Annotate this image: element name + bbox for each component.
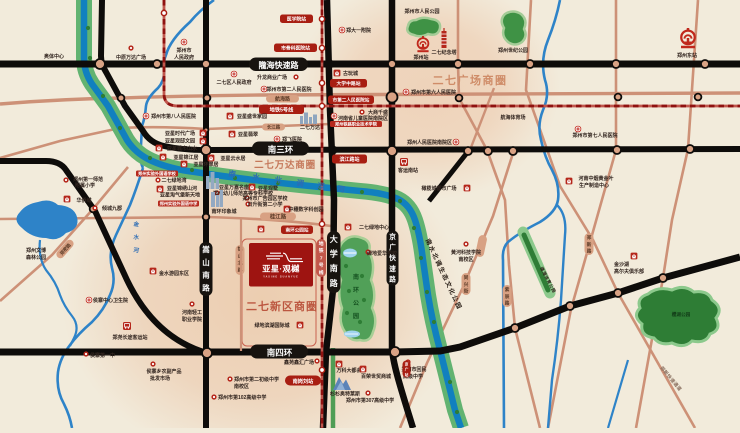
- svg-text:大商千盛: 大商千盛: [368, 109, 388, 116]
- svg-text:园: 园: [353, 312, 359, 320]
- svg-text:大学中路站: 大学中路站: [337, 80, 361, 87]
- svg-text:郑州市第六人民医院: 郑州市第六人民医院: [411, 89, 456, 96]
- svg-text:南: 南: [330, 263, 338, 273]
- svg-text:郑州第一师范: 郑州第一师范: [73, 176, 103, 183]
- svg-text:YAXING GUANYUE: YAXING GUANYUE: [263, 276, 299, 279]
- svg-text:南三环: 南三环: [268, 145, 294, 155]
- svg-text:市骨科医院站: 市骨科医院站: [281, 44, 310, 51]
- svg-text:辰: 辰: [505, 293, 510, 300]
- svg-text:奥体中心: 奥体中心: [44, 53, 64, 60]
- svg-text:郑州市人民公园: 郑州市人民公园: [404, 8, 439, 15]
- svg-text:郑州市第七人民医院: 郑州市第七人民医院: [572, 132, 617, 139]
- svg-text:森林公园: 森林公园: [25, 254, 46, 261]
- svg-text:河南中烟黄金叶: 河南中烟黄金叶: [577, 175, 613, 182]
- svg-text:南: 南: [353, 273, 359, 281]
- svg-text:金沙湖: 金沙湖: [613, 261, 629, 268]
- svg-text:站: 站: [405, 372, 409, 377]
- svg-text:郑州市第307高级中学: 郑州市第307高级中学: [346, 397, 394, 404]
- svg-text:公: 公: [353, 300, 359, 307]
- svg-text:绿地爱华学校: 绿地爱华学校: [367, 250, 398, 257]
- svg-text:亚星淘气堡新天地: 亚星淘气堡新天地: [160, 192, 200, 199]
- svg-text:日升街第二小学: 日升街第二小学: [247, 201, 282, 208]
- svg-text:7: 7: [320, 255, 323, 261]
- svg-text:二七新区商圈: 二七新区商圈: [246, 299, 318, 313]
- svg-text:地: 地: [319, 240, 324, 247]
- svg-text:亚星盛世家园: 亚星盛世家园: [237, 113, 267, 120]
- svg-text:航海路: 航海路: [275, 96, 291, 103]
- svg-text:黄河科技学院: 黄河科技学院: [451, 249, 481, 256]
- svg-text:郑: 郑: [587, 234, 592, 241]
- svg-text:亚星时代广场: 亚星时代广场: [165, 130, 195, 137]
- svg-text:地铁5号线: 地铁5号线: [270, 105, 294, 113]
- svg-text:中原万达广场: 中原万达广场: [116, 54, 146, 61]
- svg-text:人民政府: 人民政府: [173, 54, 194, 61]
- svg-text:学: 学: [330, 249, 338, 259]
- svg-text:郑州市广告园区学校: 郑州市广告园区学校: [242, 195, 288, 202]
- svg-text:路: 路: [330, 278, 339, 288]
- svg-text:医学院站: 医学院站: [287, 15, 306, 22]
- svg-text:郑大一附院: 郑大一附院: [346, 27, 371, 34]
- svg-text:新: 新: [587, 241, 592, 248]
- svg-text:生产制造中心: 生产制造中心: [579, 182, 609, 189]
- svg-text:郑州世纪公园: 郑州世纪公园: [498, 47, 528, 54]
- svg-text:樱湖公园: 樱湖公园: [671, 311, 691, 318]
- svg-text:批发市场: 批发市场: [150, 375, 170, 382]
- svg-text:路: 路: [505, 300, 510, 307]
- svg-text:绿地滨湖国际城: 绿地滨湖国际城: [254, 322, 289, 329]
- svg-text:南环公园站: 南环公园站: [286, 226, 309, 233]
- svg-text:郑州文博: 郑州文博: [26, 247, 46, 254]
- svg-text:郑州市第八人民医院: 郑州市第八人民医院: [151, 113, 196, 120]
- svg-text:万科大都会: 万科大都会: [335, 367, 361, 374]
- svg-text:亚星·观樾: 亚星·观樾: [262, 264, 300, 274]
- svg-text:路: 路: [202, 282, 210, 292]
- svg-text:郑州市第102高级中学: 郑州市第102高级中学: [218, 394, 266, 401]
- svg-text:侯寨第一中: 侯寨第一中: [90, 352, 115, 359]
- svg-text:河南轻工: 河南轻工: [181, 309, 202, 316]
- svg-text:亚星锦绣山河: 亚星锦绣山河: [167, 185, 197, 192]
- svg-text:郑尧长途客运站: 郑尧长途客运站: [112, 334, 147, 341]
- svg-text:桂江路: 桂江路: [269, 212, 287, 220]
- svg-text:倾城九郡: 倾城九郡: [101, 205, 122, 212]
- svg-text:升龙商业广场: 升龙商业广场: [257, 74, 287, 81]
- svg-text:亚星观邸文园: 亚星观邸文园: [165, 138, 195, 145]
- svg-text:鑫苑鑫汇广场: 鑫苑鑫汇广场: [283, 359, 314, 366]
- svg-text:亚星万嘉名座: 亚星万嘉名座: [219, 184, 249, 191]
- svg-text:职业学院: 职业学院: [182, 316, 202, 323]
- svg-text:路: 路: [389, 274, 396, 283]
- svg-text:南校区: 南校区: [234, 383, 249, 390]
- svg-text:南岗刘站: 南岗刘站: [293, 377, 315, 385]
- svg-text:郑州实验外国语学校: 郑州实验外国语学校: [138, 170, 177, 177]
- svg-text:华侨城: 华侨城: [76, 197, 91, 204]
- svg-text:高尔夫俱乐部: 高尔夫俱乐部: [614, 268, 644, 275]
- svg-text:嵩: 嵩: [202, 244, 210, 254]
- svg-text:侯寨中心卫生院: 侯寨中心卫生院: [93, 297, 128, 304]
- svg-text:京: 京: [405, 362, 409, 367]
- svg-text:二七区人民政府: 二七区人民政府: [216, 79, 251, 86]
- svg-text:亚星城市山水: 亚星城市山水: [167, 145, 198, 152]
- svg-text:二七广场商圈: 二七广场商圈: [433, 73, 508, 87]
- svg-text:郑州站: 郑州站: [413, 54, 428, 61]
- svg-text:京: 京: [389, 232, 396, 241]
- svg-text:大: 大: [330, 234, 338, 244]
- svg-text:南: 南: [202, 270, 210, 280]
- svg-text:紫: 紫: [505, 286, 510, 293]
- svg-text:侯寨乡农副产品: 侯寨乡农副产品: [146, 368, 181, 375]
- svg-text:金水游园东区: 金水游园东区: [158, 270, 189, 277]
- svg-text:百荣世贸商城: 百荣世贸商城: [361, 373, 391, 380]
- svg-text:古玩城: 古玩城: [343, 70, 358, 77]
- svg-text:客运南站: 客运南站: [397, 167, 418, 174]
- svg-text:郑州市第二初级中学: 郑州市第二初级中学: [234, 376, 279, 383]
- svg-text:二七万达商圈: 二七万达商圈: [254, 159, 316, 171]
- svg-text:速: 速: [389, 264, 396, 273]
- svg-text:郑飞医院: 郑飞医院: [282, 136, 302, 143]
- svg-text:线: 线: [319, 269, 324, 276]
- svg-text:环: 环: [353, 286, 359, 294]
- svg-text:郑州市第二人民医院: 郑州市第二人民医院: [266, 86, 311, 93]
- svg-text:铁: 铁: [319, 247, 324, 254]
- svg-text:中穗数字科创园: 中穗数字科创园: [288, 206, 323, 213]
- svg-text:号: 号: [319, 262, 324, 269]
- svg-text:滨江路站: 滨江路站: [339, 156, 359, 163]
- svg-text:二七绿地中心: 二七绿地中心: [359, 224, 389, 231]
- svg-text:二七纪念塔: 二七纪念塔: [431, 49, 457, 56]
- svg-text:亚星翡翠: 亚星翡翠: [238, 131, 258, 138]
- svg-text:亚星环翠居: 亚星环翠居: [193, 161, 218, 168]
- svg-text:河南省儿童医院南院区: 河南省儿童医院南院区: [337, 115, 388, 122]
- svg-text:长江路: 长江路: [267, 124, 281, 131]
- svg-text:亚星锦江居: 亚星锦江居: [173, 154, 198, 161]
- svg-text:市第二人民医院站: 市第二人民医院站: [333, 96, 370, 103]
- svg-text:南校区: 南校区: [458, 256, 473, 263]
- svg-text:亚星云水居: 亚星云水居: [220, 155, 245, 162]
- svg-text:南四环: 南四环: [267, 348, 293, 358]
- svg-text:附属小学: 附属小学: [75, 182, 95, 189]
- svg-text:路: 路: [587, 248, 592, 255]
- svg-text:航海体育场: 航海体育场: [500, 114, 525, 121]
- svg-text:山: 山: [202, 257, 210, 267]
- svg-text:郑州人民医院南院区: 郑州人民医院南院区: [407, 139, 452, 146]
- svg-text:隴海快速路: 隴海快速路: [259, 60, 300, 70]
- svg-text:广: 广: [405, 367, 409, 372]
- svg-text:同: 同: [464, 274, 469, 281]
- svg-text:二七万达: 二七万达: [300, 124, 320, 131]
- svg-text:郑州市: 郑州市: [176, 47, 191, 54]
- svg-text:街: 街: [463, 288, 469, 295]
- svg-text:兴: 兴: [464, 281, 469, 288]
- svg-text:二七绿地湾: 二七绿地湾: [161, 177, 186, 184]
- svg-text:郑州东站: 郑州东站: [677, 52, 697, 59]
- svg-text:南环印象城: 南环印象城: [211, 208, 236, 215]
- svg-text:杉杉奥特莱斯: 杉杉奥特莱斯: [329, 391, 360, 398]
- svg-text:郑州实验外国语中学: 郑州实验外国语中学: [160, 200, 199, 207]
- svg-text:橄榄城都市广场: 橄榄城都市广场: [421, 185, 456, 192]
